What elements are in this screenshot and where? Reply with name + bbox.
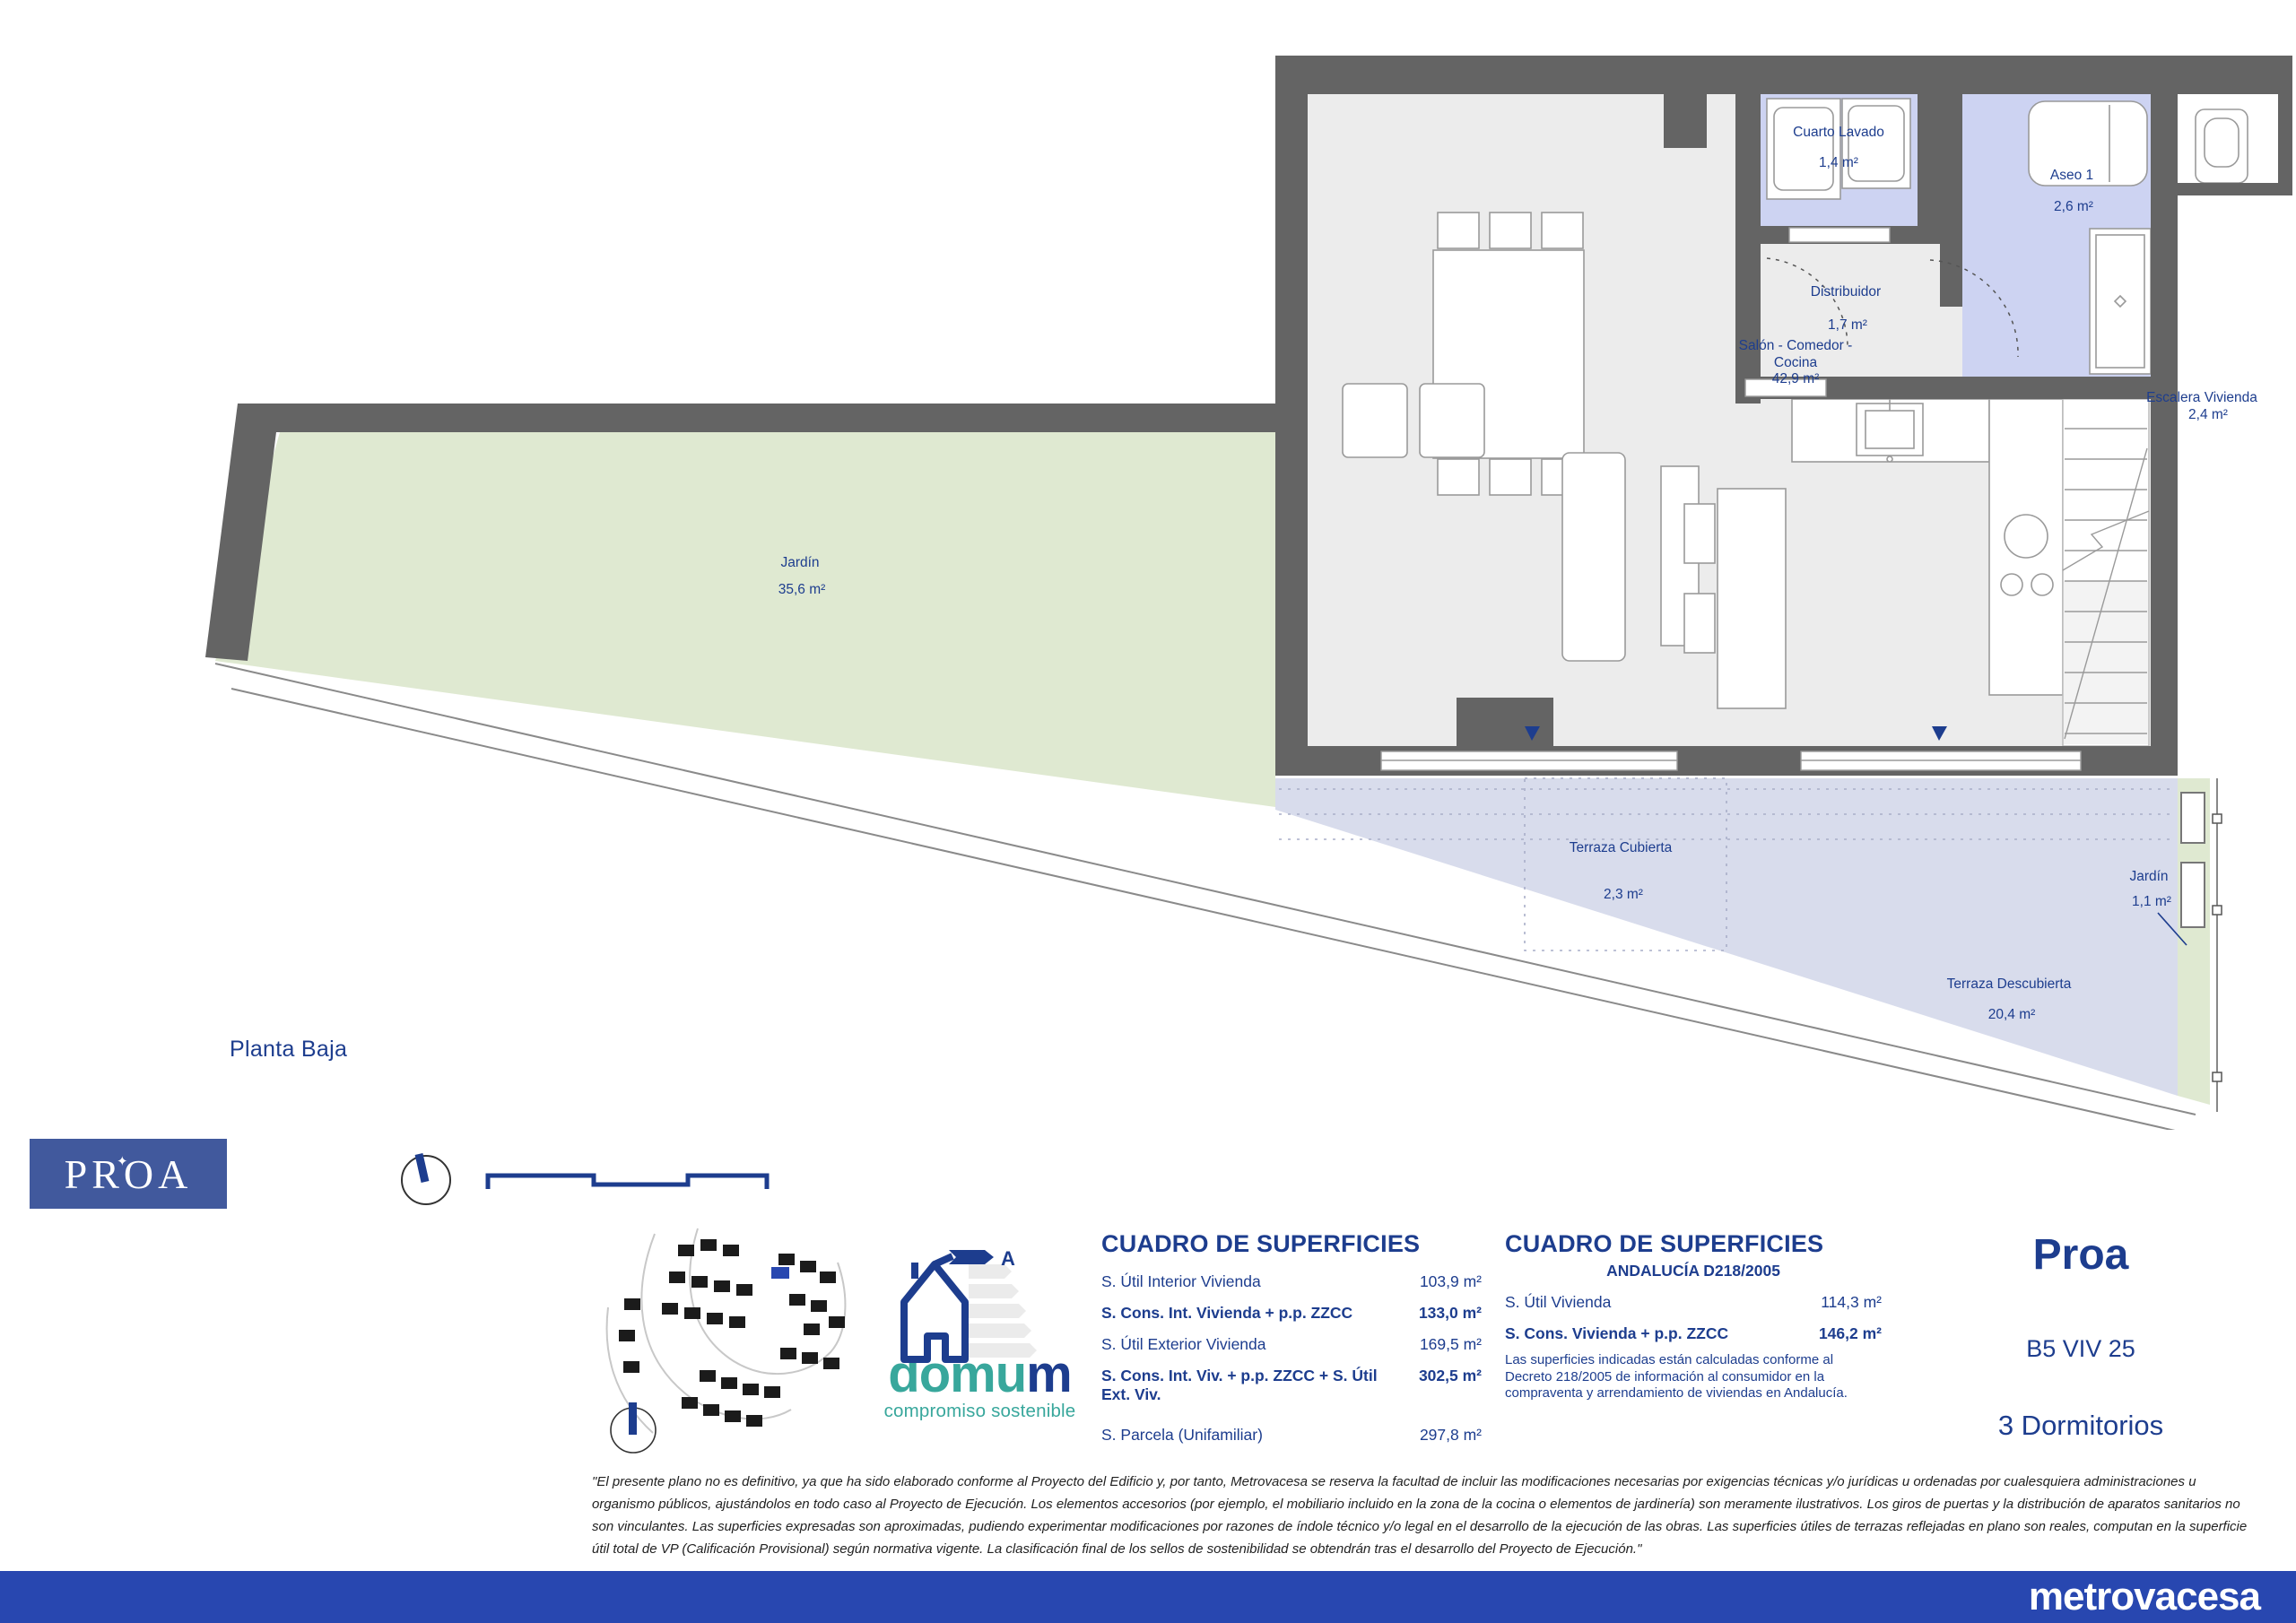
domum-logo: A domum compromiso sostenible — [883, 1245, 1076, 1422]
room-label-jardin-lateral: Jardín — [2129, 869, 2168, 884]
room-label-terraza-descubierta: Terraza Descubierta — [1947, 976, 2072, 992]
stairs — [2063, 399, 2149, 746]
room-label-jardin: Jardín — [780, 555, 819, 570]
site-buildings — [619, 1239, 845, 1427]
terrace-area — [1275, 778, 2222, 1112]
floor-plan: Cuarto Lavado 1,4 m² Aseo 1 2,6 m² Distr… — [0, 0, 2296, 1130]
site-north-arrow-icon — [611, 1402, 656, 1453]
domum-tagline: compromiso sostenible — [883, 1401, 1076, 1422]
planter-icon — [2181, 863, 2205, 927]
sink-icon — [1857, 399, 1923, 462]
garden-top-wall — [238, 404, 1308, 432]
surfaces-table-andalucia: CUADRO DE SUPERFICIES ANDALUCÍA D218/200… — [1505, 1230, 1882, 1402]
surfaces-table-title: CUADRO DE SUPERFICIES — [1505, 1230, 1882, 1258]
surfaces-table-subtitle: ANDALUCÍA D218/2005 — [1505, 1262, 1882, 1280]
metrovacesa-logo: metrovacesa — [2029, 1571, 2260, 1623]
room-area-salon: 42,9 m² — [1772, 371, 1820, 386]
room-label-salon-1: Salón - Comedor - — [1739, 338, 1853, 353]
room-label-distribuidor: Distribuidor — [1811, 284, 1881, 299]
room-label-lavado: Cuarto Lavado — [1793, 125, 1884, 140]
washing-machine-icon — [1767, 99, 1910, 199]
proa-logo-text: PROA — [65, 1150, 193, 1198]
table-row: S. Cons. Int. Vivienda + p.p. ZZCC 133,0… — [1101, 1304, 1482, 1323]
project-name: Proa — [1960, 1230, 2202, 1280]
site-highlighted-unit — [771, 1267, 789, 1279]
toilet-icon — [2196, 109, 2248, 183]
surfaces-table-title: CUADRO DE SUPERFICIES — [1101, 1230, 1482, 1258]
proa-logo: PROA ✦ — [30, 1139, 227, 1209]
domum-house-icon: A — [888, 1245, 1081, 1370]
room-label-escalera: Escalera Vivienda — [2146, 390, 2257, 405]
footer-brand-bar: metrovacesa — [0, 1571, 2296, 1623]
shower-icon — [2090, 229, 2151, 374]
room-area-terraza-cubierta: 2,3 m² — [1604, 887, 1643, 902]
compass-star-icon: ✦ — [117, 1153, 128, 1169]
room-label-salon-2: Cocina — [1774, 355, 1818, 370]
surfaces-table: CUADRO DE SUPERFICIES S. Útil Interior V… — [1101, 1230, 1482, 1445]
graphic-scale-bar — [484, 1164, 780, 1194]
unit-code: B5 VIV 25 — [1960, 1335, 2202, 1363]
room-label-aseo: Aseo 1 — [2050, 168, 2093, 183]
decree-note: Las superficies indicadas están calculad… — [1505, 1352, 1882, 1402]
floor-level-caption: Planta Baja — [230, 1037, 347, 1063]
table-row: S. Cons. Vivienda + p.p. ZZCC 146,2 m² — [1505, 1324, 1882, 1343]
room-area-lavado: 1,4 m² — [1819, 155, 1858, 170]
room-area-terraza-descubierta: 20,4 m² — [1988, 1007, 2036, 1022]
room-area-distribuidor: 1,7 m² — [1828, 317, 1867, 333]
energy-bars-icon — [969, 1264, 1037, 1358]
room-area-aseo: 2,6 m² — [2054, 199, 2093, 214]
planter-icon — [2181, 793, 2205, 843]
bedroom-count: 3 Dormitorios — [1960, 1410, 2202, 1442]
table-row: S. Útil Interior Vivienda 103,9 m² — [1101, 1272, 1482, 1291]
room-area-escalera: 2,4 m² — [2188, 407, 2228, 422]
table-row: S. Cons. Int. Viv. + p.p. ZZCC + S. Útil… — [1101, 1367, 1482, 1404]
site-plan-map — [599, 1227, 913, 1505]
unit-info: Proa B5 VIV 25 3 Dormitorios — [1960, 1230, 2202, 1442]
room-label-terraza-cubierta: Terraza Cubierta — [1570, 840, 1673, 855]
room-area-jardin: 35,6 m² — [778, 582, 826, 597]
room-area-jardin-lateral: 1,1 m² — [2132, 894, 2171, 909]
energy-letter: A — [1001, 1247, 1015, 1270]
table-row: S. Parcela (Unifamiliar) 297,8 m² — [1101, 1426, 1482, 1445]
garden-area — [205, 404, 1308, 807]
legal-disclaimer: "El presente plano no es definitivo, ya … — [592, 1471, 2253, 1560]
table-row: S. Útil Vivienda 114,3 m² — [1505, 1293, 1882, 1312]
table-row: S. Útil Exterior Vivienda 169,5 m² — [1101, 1335, 1482, 1354]
north-arrow-icon — [395, 1148, 457, 1211]
